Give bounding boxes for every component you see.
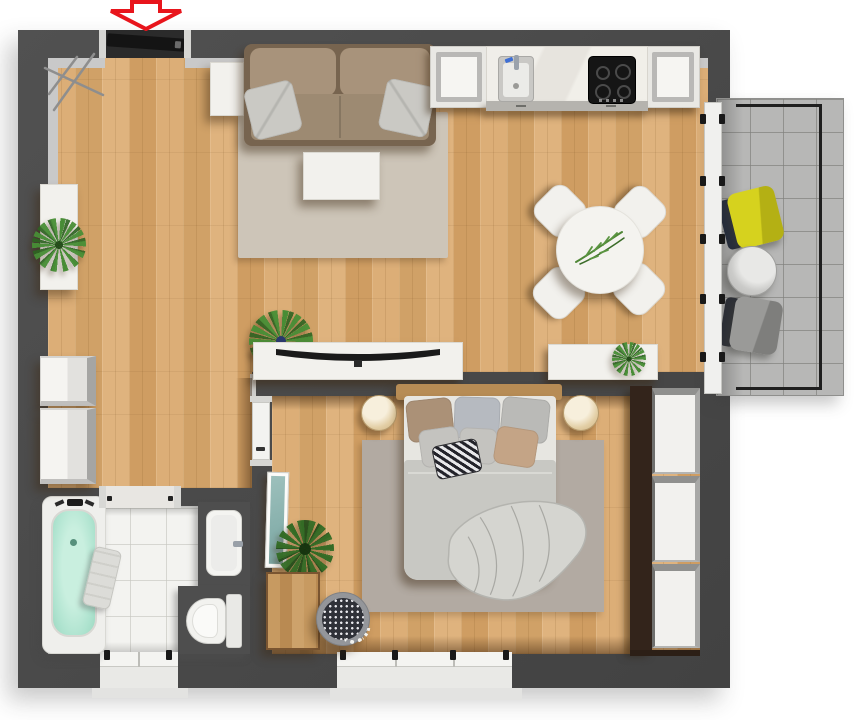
balcony-door-handle	[700, 294, 706, 304]
cabinet-panel	[652, 52, 694, 102]
burner-icon	[615, 64, 631, 80]
bed-blanket	[419, 487, 610, 617]
coat-rack	[42, 50, 108, 114]
sofa-seat-seam	[339, 96, 341, 138]
bedroom-dresser	[266, 572, 320, 650]
burner-icon	[595, 84, 611, 100]
tub-spout-icon	[67, 499, 83, 506]
kitchen-cabinet-left	[430, 46, 488, 108]
sink-drain-icon	[513, 83, 519, 89]
burner-icon	[596, 66, 610, 80]
chair-seat	[728, 295, 784, 356]
bedroom-door-frame-top	[250, 396, 272, 402]
sofa-pillow	[377, 77, 437, 138]
sideboard-small-plant	[612, 342, 646, 376]
window-handle	[392, 650, 398, 660]
window-handle	[340, 650, 346, 660]
sideboard-plant	[32, 218, 86, 272]
control-icon	[599, 99, 602, 102]
door-handle-icon	[256, 447, 265, 451]
dining-table-plant	[570, 226, 628, 268]
bedroom-window	[337, 652, 512, 688]
floor-plan	[0, 0, 866, 720]
window-handle	[166, 650, 172, 660]
nightstand-right	[563, 395, 599, 431]
sofa	[244, 44, 436, 146]
bedroom-door-leaf	[252, 402, 270, 460]
balcony-door-handle	[700, 176, 706, 186]
bedroom-plant	[276, 520, 334, 578]
cabinet-panel	[436, 52, 482, 102]
window-handle	[450, 650, 456, 660]
toilet-tank	[226, 594, 242, 648]
balcony-door-handle	[719, 294, 725, 304]
balcony-door-handle	[719, 352, 725, 362]
entrance-arrow	[101, 0, 191, 31]
balcony-gray-armchair	[718, 294, 786, 359]
wardrobe-side-panel	[630, 386, 652, 650]
bathroom-door-handle-icon	[107, 496, 112, 501]
toilet	[186, 598, 226, 644]
balcony-door-handle	[719, 114, 725, 124]
window-handle	[503, 650, 509, 660]
window-handle	[104, 650, 110, 660]
toilet-seat	[192, 604, 218, 638]
bathroom-door-frame-right	[174, 486, 181, 508]
burner-icon	[617, 85, 631, 99]
storage-cabinet	[40, 408, 96, 484]
bathroom-door-frame-left	[99, 486, 106, 508]
induction-cooktop	[588, 56, 636, 104]
kitchen-cabinet-right	[646, 46, 700, 108]
wardrobe-base	[630, 650, 700, 656]
patterned-pouf	[316, 592, 370, 646]
control-icon	[620, 99, 623, 102]
tub-handle-icon	[85, 499, 95, 506]
storage-cabinet	[40, 356, 96, 406]
entrance-arrow-shape	[111, 2, 181, 29]
bathroom-window-sill	[92, 688, 188, 698]
curved-tv	[268, 344, 448, 370]
coffee-table	[303, 152, 380, 200]
bathroom-door-handle-icon	[168, 496, 173, 501]
bathroom-door-threshold	[106, 486, 174, 508]
tub-drain-icon	[70, 539, 77, 546]
window-frame	[337, 652, 512, 667]
bathroom-window	[100, 652, 178, 688]
balcony-door	[704, 102, 722, 394]
wardrobe-section	[652, 476, 700, 562]
window-mullion	[138, 652, 140, 667]
hallway-wall-shadow	[236, 378, 252, 488]
wardrobe-section	[652, 388, 700, 474]
sofa-side-table	[210, 62, 244, 116]
washbasin	[206, 510, 242, 576]
balcony-door-handle	[700, 352, 706, 362]
control-icon	[606, 99, 609, 102]
drawer-handle-icon	[606, 105, 616, 107]
balcony-door-handle	[700, 234, 706, 244]
bedroom-door-frame-bottom	[250, 460, 272, 466]
basin-faucet-icon	[233, 541, 243, 547]
balcony-door-handle	[719, 234, 725, 244]
tub-handle-icon	[55, 499, 65, 506]
nightstand-left	[361, 395, 397, 431]
door-handle-icon	[175, 41, 181, 48]
wardrobe-section	[652, 564, 700, 648]
drawer-handle-icon	[516, 105, 526, 107]
kitchen-sink	[498, 56, 534, 102]
bed-pillow	[492, 425, 539, 469]
control-icon	[613, 99, 616, 102]
entrance-frame-right	[184, 30, 191, 58]
faucet-icon	[514, 55, 519, 70]
balcony-door-handle	[700, 114, 706, 124]
duvet-fold-line	[408, 472, 552, 474]
bedroom-window-sill	[330, 688, 522, 700]
balcony-door-handle	[719, 176, 725, 186]
balcony-round-table	[727, 246, 777, 296]
